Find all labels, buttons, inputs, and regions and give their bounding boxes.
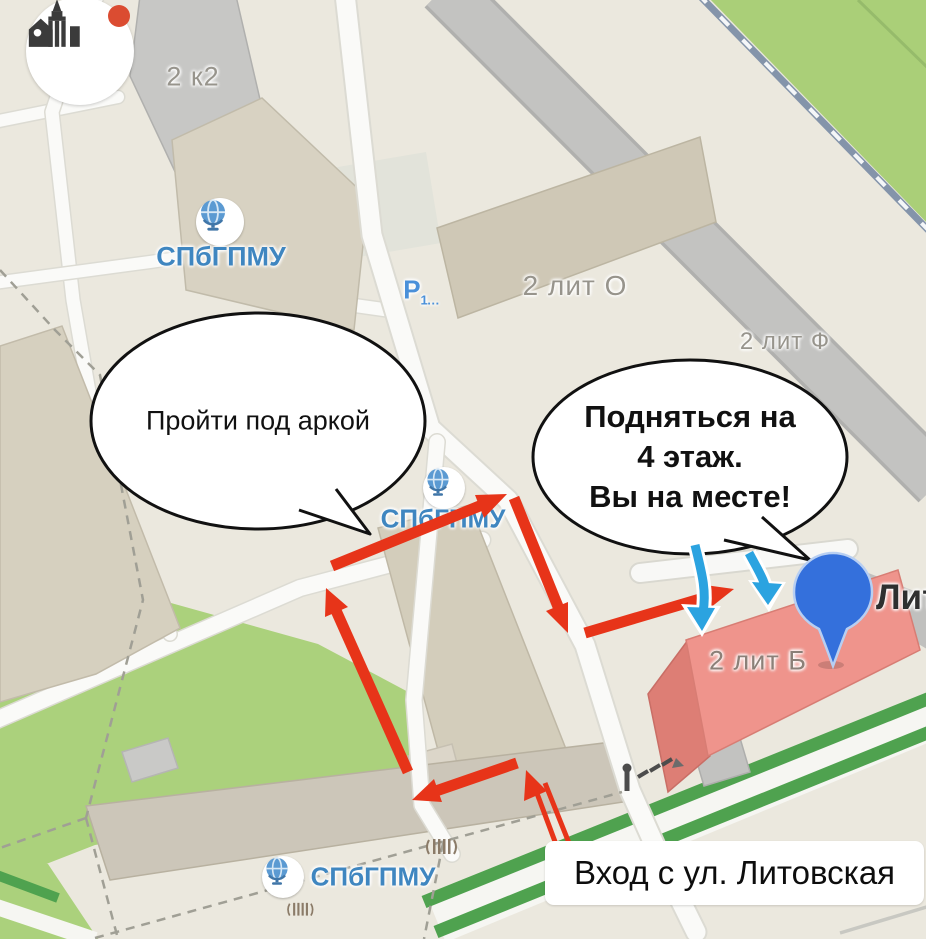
route-overlay: [0, 0, 926, 939]
entrance-arrows: [681, 545, 786, 637]
location-pin[interactable]: [794, 553, 872, 666]
map-screenshot: 2 к2 2 лит О 2 лит Ф 2 лит Б Литовская P…: [0, 0, 926, 939]
route-arrows: [325, 494, 734, 847]
